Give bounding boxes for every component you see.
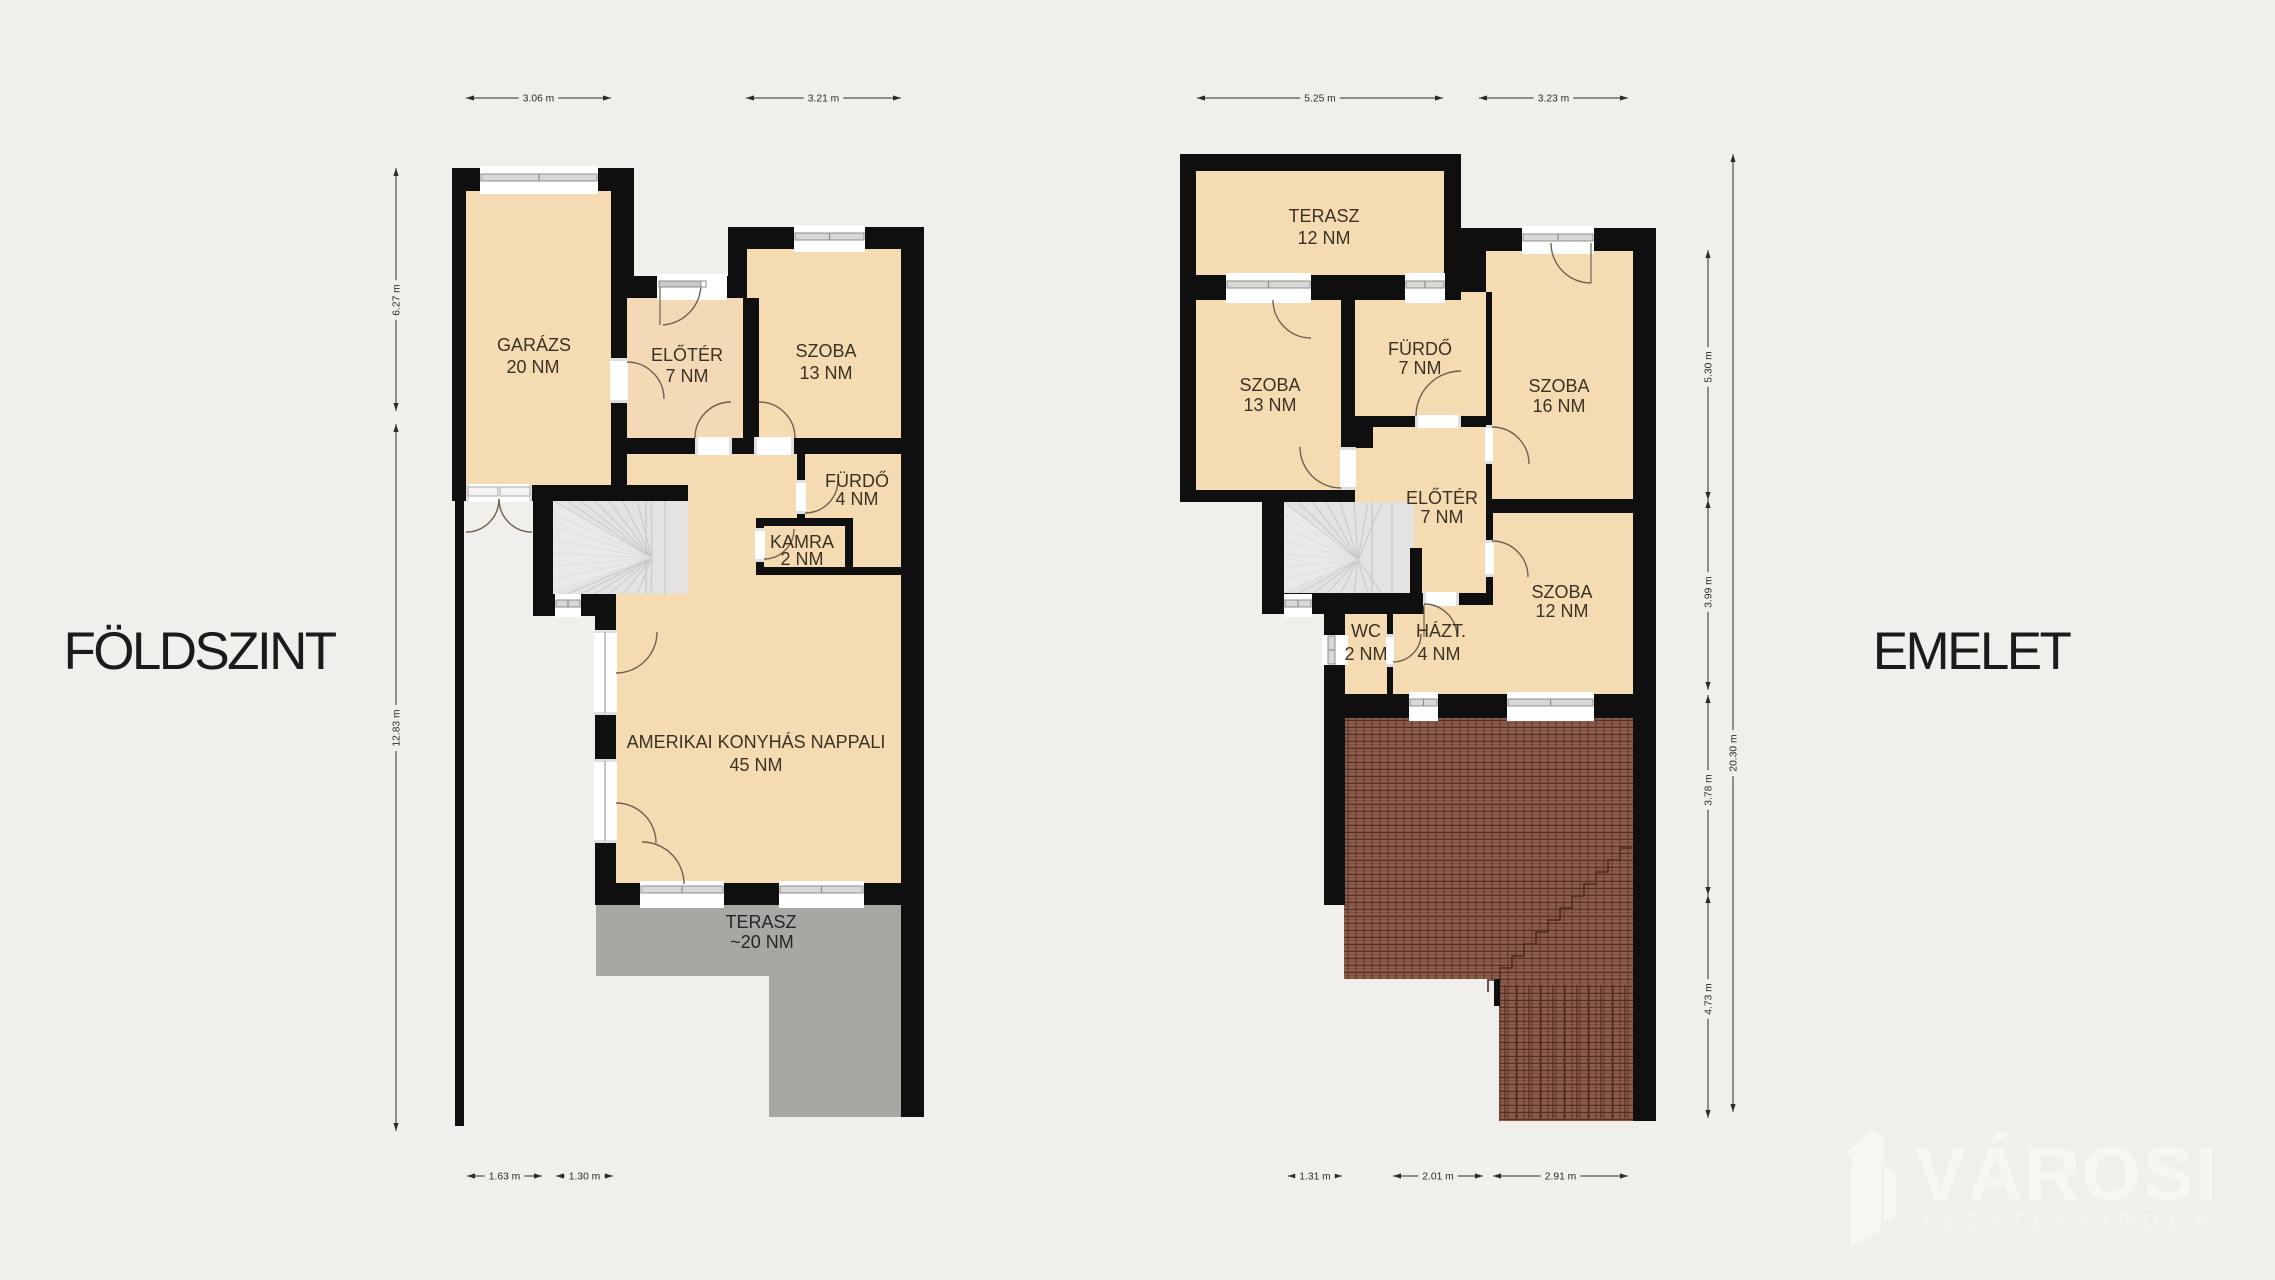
svg-text:3.21 m: 3.21 m (808, 94, 839, 105)
svg-text:16 NM: 16 NM (1532, 396, 1585, 416)
svg-text:3.78 m: 3.78 m (1704, 774, 1715, 805)
svg-text:FÜRDŐ: FÜRDŐ (1388, 338, 1452, 359)
svg-text:2 NM: 2 NM (780, 549, 823, 569)
svg-text:20.30 m: 20.30 m (1729, 734, 1740, 771)
svg-text:TERASZ: TERASZ (1288, 206, 1359, 226)
svg-text:INGATLANIRODA: INGATLANIRODA (1923, 1210, 2216, 1233)
svg-text:5.30 m: 5.30 m (1704, 351, 1715, 382)
svg-text:GARÁZS: GARÁZS (497, 335, 571, 355)
svg-text:2.01 m: 2.01 m (1422, 1172, 1453, 1183)
svg-text:1.31 m: 1.31 m (1299, 1172, 1330, 1183)
svg-text:4.73 m: 4.73 m (1704, 983, 1715, 1014)
svg-text:TERASZ: TERASZ (725, 912, 796, 932)
svg-text:FÖLDSZINT: FÖLDSZINT (63, 622, 336, 681)
svg-text:2 NM: 2 NM (1344, 644, 1387, 664)
svg-text:3.06 m: 3.06 m (523, 94, 554, 105)
svg-text:1.30 m: 1.30 m (569, 1172, 600, 1183)
svg-text:3.23 m: 3.23 m (1538, 94, 1569, 105)
svg-text:AMERIKAI KONYHÁS NAPPALI: AMERIKAI KONYHÁS NAPPALI (627, 732, 886, 752)
svg-text:7 NM: 7 NM (1420, 507, 1463, 527)
svg-text:7 NM: 7 NM (665, 366, 708, 386)
svg-text:13 NM: 13 NM (1243, 395, 1296, 415)
svg-text:12 NM: 12 NM (1535, 601, 1588, 621)
svg-text:SZOBA: SZOBA (1528, 376, 1589, 396)
svg-text:ELŐTÉR: ELŐTÉR (651, 344, 723, 365)
svg-text:~20 NM: ~20 NM (730, 932, 794, 952)
svg-text:4 NM: 4 NM (1417, 644, 1460, 664)
svg-text:SZOBA: SZOBA (795, 341, 856, 361)
svg-text:3.99 m: 3.99 m (1704, 576, 1715, 607)
svg-text:ELŐTÉR: ELŐTÉR (1406, 487, 1478, 508)
svg-text:SZOBA: SZOBA (1531, 582, 1592, 602)
svg-text:20 NM: 20 NM (506, 357, 559, 377)
svg-text:VÁROSI: VÁROSI (1915, 1132, 2218, 1217)
svg-text:FÜRDŐ: FÜRDŐ (825, 470, 889, 491)
svg-text:4 NM: 4 NM (835, 489, 878, 509)
svg-text:EMELET: EMELET (1873, 622, 2072, 681)
svg-text:6.27 m: 6.27 m (392, 284, 403, 315)
svg-text:HÁZT.: HÁZT. (1416, 621, 1466, 641)
svg-text:2.91 m: 2.91 m (1545, 1172, 1576, 1183)
svg-text:12 NM: 12 NM (1297, 228, 1350, 248)
svg-text:SZOBA: SZOBA (1239, 375, 1300, 395)
svg-text:WC: WC (1351, 621, 1381, 641)
svg-text:7 NM: 7 NM (1398, 358, 1441, 378)
svg-text:12.83 m: 12.83 m (392, 709, 403, 746)
svg-text:1.63 m: 1.63 m (489, 1172, 520, 1183)
svg-text:5.25 m: 5.25 m (1304, 94, 1335, 105)
svg-text:13 NM: 13 NM (799, 363, 852, 383)
svg-text:45 NM: 45 NM (729, 755, 782, 775)
